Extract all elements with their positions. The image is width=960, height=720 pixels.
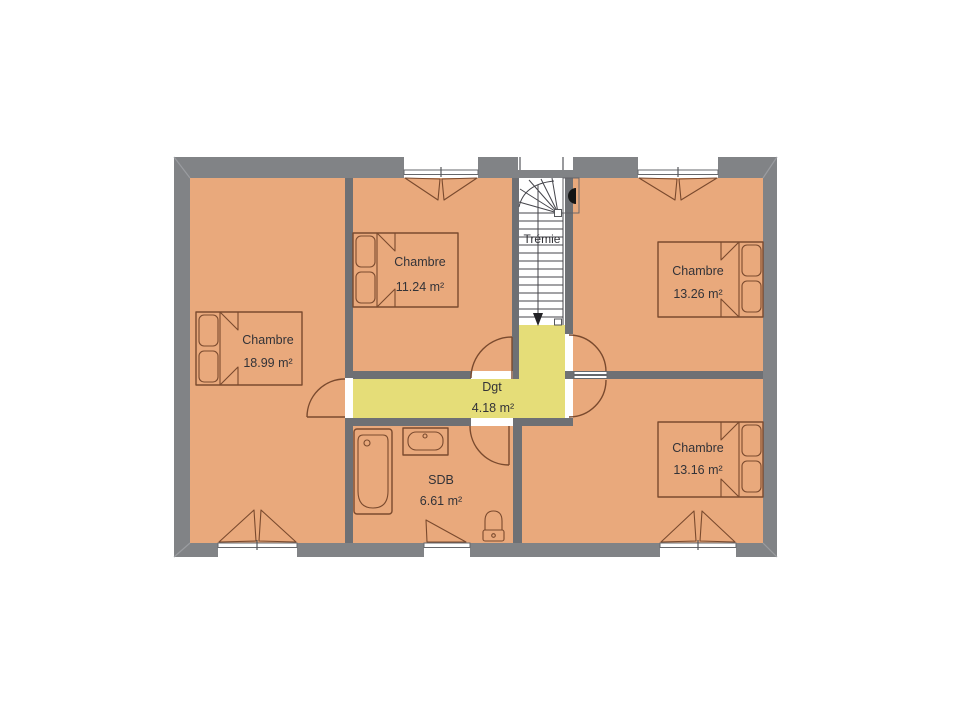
wall-left-room-upper: [345, 178, 353, 378]
stair-rail-node: [555, 210, 562, 217]
wall-sdb-north-left: [345, 418, 471, 426]
door-leaf-closed: [574, 376, 607, 379]
opening-chambre-4: [565, 379, 573, 418]
wall-sdb-east: [513, 426, 522, 543]
room-name-chambre-4: Chambre: [672, 441, 723, 455]
wall-stair-west: [512, 178, 519, 379]
room-area-chambre-1: 18.99 m²: [243, 356, 292, 370]
floor-plan-canvas: Chambre 18.99 m² Chambre 11.24 m² Chambr…: [0, 0, 960, 720]
room-name-degagement: Dgt: [482, 380, 502, 394]
floor-plan-page: Chambre 18.99 m² Chambre 11.24 m² Chambr…: [0, 0, 960, 720]
room-name-chambre-3: Chambre: [672, 264, 723, 278]
opening-sdb: [471, 418, 513, 426]
wall-left-room-lower: [345, 418, 353, 543]
room-chambre-3-floor: [573, 178, 763, 371]
wall-hall-north: [353, 371, 471, 379]
stair-rail-node: [555, 319, 562, 325]
room-name-sdb: SDB: [428, 473, 454, 487]
room-area-chambre-2: 11.24 m²: [396, 280, 444, 294]
opening-chambre-3: [565, 334, 573, 371]
opening-chambre-1: [345, 378, 353, 418]
wall-sdb-north-right: [513, 418, 573, 426]
room-name-chambre-2: Chambre: [394, 255, 445, 269]
room-area-sdb: 6.61 m²: [420, 494, 462, 508]
room-area-degagement: 4.18 m²: [472, 401, 514, 415]
stairwell-label: Trémie: [524, 232, 561, 246]
opening-chambre-2: [471, 371, 513, 379]
room-name-chambre-1: Chambre: [242, 333, 293, 347]
stairwell-floor: [519, 178, 565, 325]
room-area-chambre-4: 13.16 m²: [673, 463, 722, 477]
room-area-chambre-3: 13.26 m²: [673, 287, 722, 301]
wall-stair-east-stub: [565, 371, 573, 379]
door-leaf-closed: [574, 372, 607, 375]
stair-wall-notch: [518, 157, 573, 170]
window-glass: [424, 543, 470, 548]
